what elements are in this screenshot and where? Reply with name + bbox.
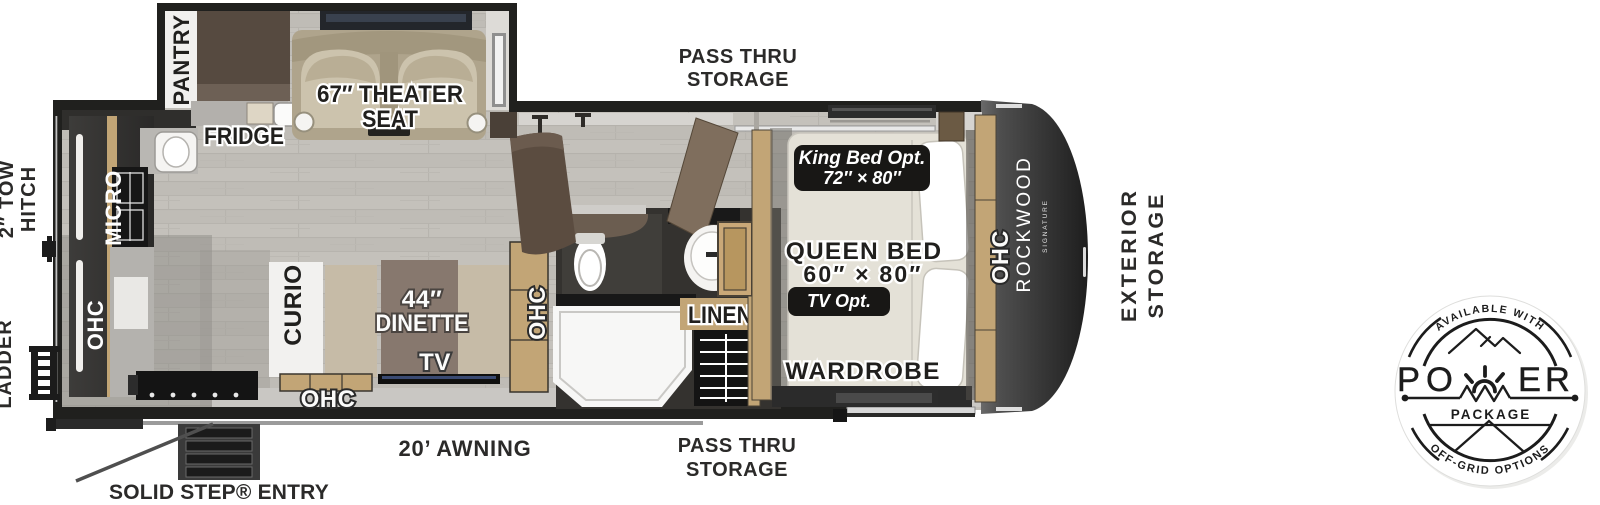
svg-text:TV: TV (419, 349, 451, 376)
svg-text:OHC: OHC (524, 286, 550, 340)
svg-text:WARDROBE: WARDROBE (785, 358, 940, 385)
svg-text:DINETTE: DINETTE (376, 310, 469, 337)
svg-text:King Bed Opt.: King Bed Opt. (799, 148, 926, 169)
svg-text:SEAT: SEAT (362, 106, 418, 133)
svg-text:44″: 44″ (402, 286, 443, 313)
svg-text:20’ AWNING: 20’ AWNING (398, 436, 531, 461)
svg-text:CURIO: CURIO (280, 264, 307, 345)
svg-text:OHC: OHC (987, 230, 1013, 284)
svg-text:STORAGE: STORAGE (1144, 192, 1168, 319)
svg-text:PASS THRU: PASS THRU (679, 46, 798, 68)
svg-text:HITCH: HITCH (18, 166, 40, 232)
svg-text:PANTRY: PANTRY (169, 15, 194, 106)
svg-text:PASS THRU: PASS THRU (678, 435, 797, 457)
svg-text:LADDER: LADDER (0, 319, 16, 408)
svg-text:ROCKWOOD: ROCKWOOD (1014, 156, 1035, 293)
svg-text:O: O (1426, 361, 1453, 399)
svg-text:FRIDGE: FRIDGE (204, 123, 284, 150)
svg-text:MICRO: MICRO (101, 170, 126, 246)
svg-text:OHC: OHC (301, 386, 356, 413)
svg-text:72″ × 80″: 72″ × 80″ (823, 168, 902, 188)
svg-text:SOLID STEP® ENTRY: SOLID STEP® ENTRY (109, 481, 329, 504)
svg-text:STORAGE: STORAGE (686, 459, 788, 481)
svg-text:OHC: OHC (83, 300, 108, 350)
svg-text:LINEN: LINEN (688, 302, 752, 329)
svg-text:STORAGE: STORAGE (687, 69, 789, 91)
svg-text:67″ THEATER: 67″ THEATER (317, 81, 463, 108)
svg-text:2″ TOW: 2″ TOW (0, 160, 18, 239)
svg-text:60″ × 80″: 60″ × 80″ (803, 261, 922, 287)
svg-text:E: E (1518, 361, 1541, 399)
svg-text:EXTERIOR: EXTERIOR (1117, 188, 1141, 322)
svg-text:PACKAGE: PACKAGE (1451, 407, 1532, 422)
svg-text:TV Opt.: TV Opt. (807, 291, 871, 311)
svg-text:R: R (1545, 361, 1570, 399)
svg-text:SIGNATURE: SIGNATURE (1042, 199, 1049, 253)
svg-text:P: P (1397, 361, 1420, 399)
